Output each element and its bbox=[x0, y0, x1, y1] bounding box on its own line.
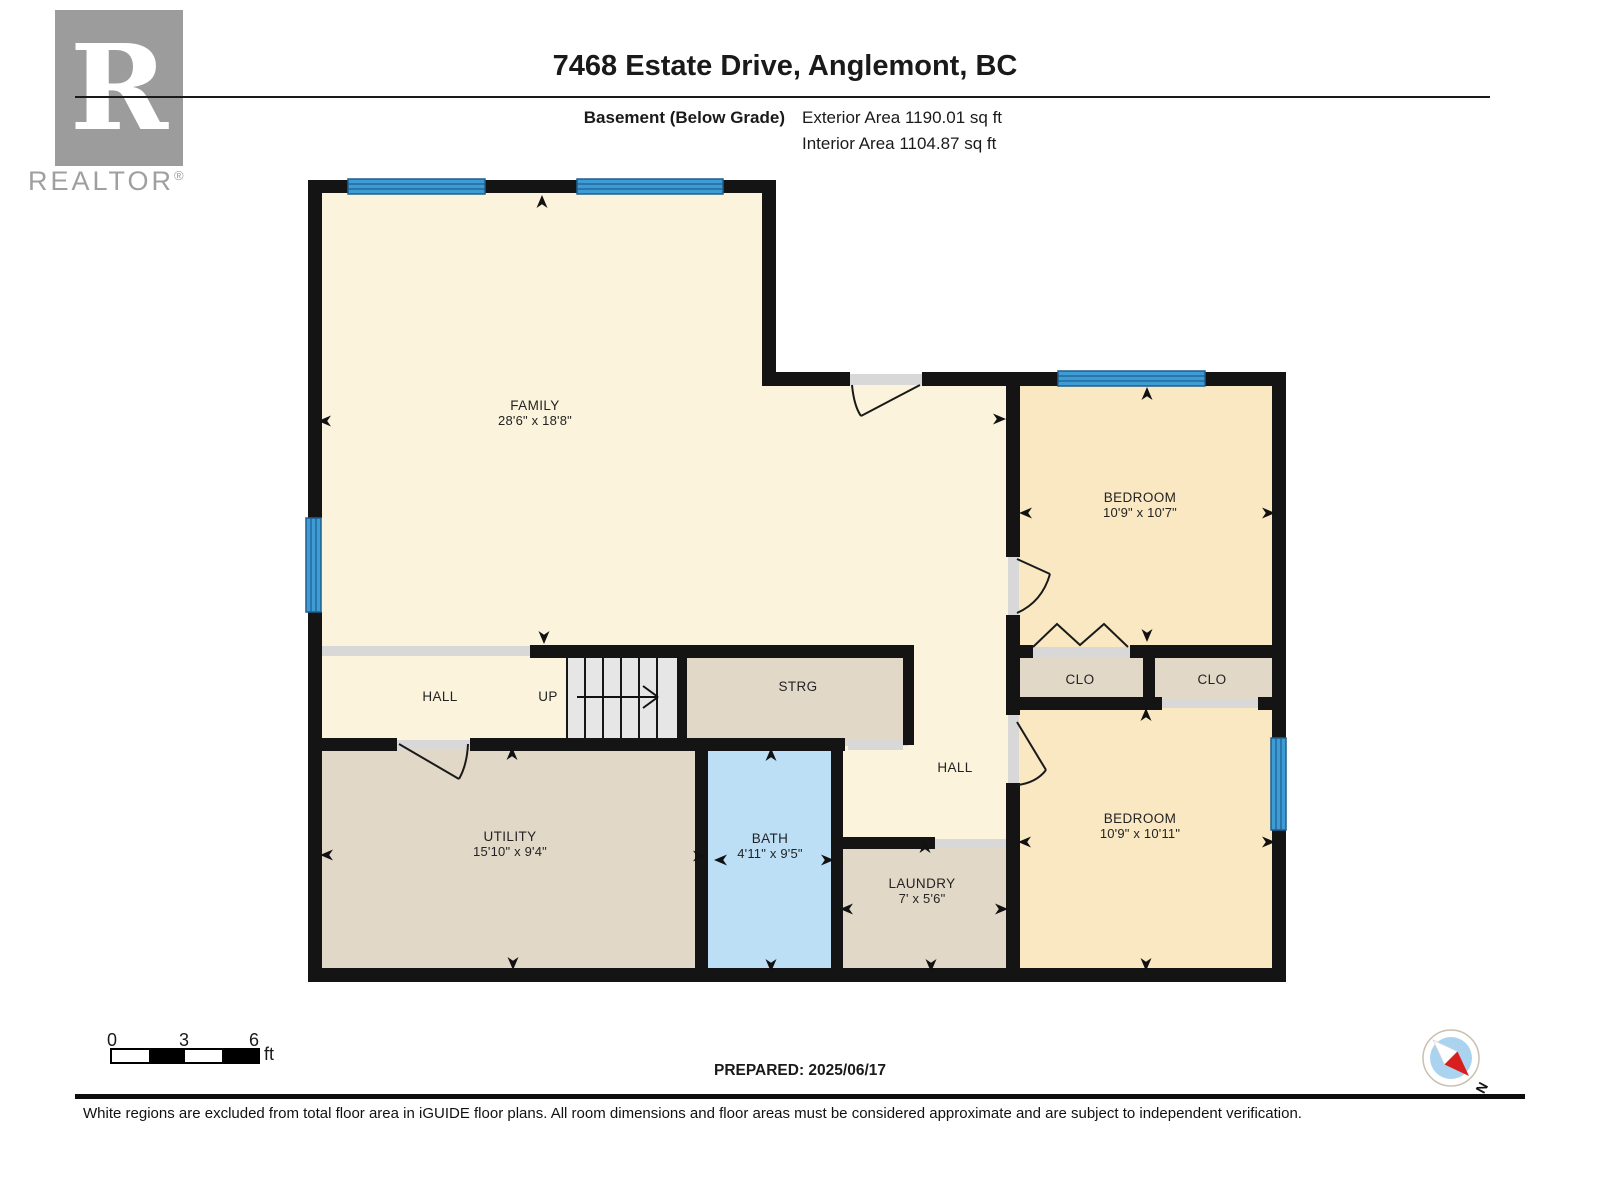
bedroom-top-label: BEDROOM bbox=[1104, 490, 1177, 505]
hall-lower-label: HALL bbox=[937, 760, 972, 775]
footer-divider bbox=[75, 1094, 1525, 1099]
hall-upper-label: HALL bbox=[422, 689, 457, 704]
family-dims: 28'6" x 18'8" bbox=[498, 413, 572, 428]
room-storage bbox=[683, 651, 908, 746]
prepared-date: PREPARED: 2025/06/17 bbox=[640, 1062, 960, 1080]
utility-label: UTILITY bbox=[483, 829, 536, 844]
room-utility bbox=[318, 745, 700, 973]
closet-right-label: CLO bbox=[1198, 672, 1227, 687]
window-icon bbox=[306, 518, 321, 612]
window-icon bbox=[1058, 371, 1205, 386]
bedroom-bottom-dims: 10'9" x 10'11" bbox=[1100, 826, 1181, 841]
stairs-up-label: UP bbox=[538, 689, 558, 704]
scale-bar bbox=[110, 1048, 260, 1064]
window-icon bbox=[1271, 738, 1286, 830]
storage-label: STRG bbox=[778, 679, 817, 694]
utility-dims: 15'10" x 9'4" bbox=[473, 844, 547, 859]
floor-plan-page: R REALTOR® 7468 Estate Drive, Anglemont,… bbox=[0, 0, 1600, 1200]
scale-unit-label: ft bbox=[264, 1044, 274, 1065]
laundry-dims: 7' x 5'6" bbox=[899, 891, 946, 906]
room-hall-lower bbox=[838, 745, 1014, 845]
window-icon bbox=[348, 179, 485, 194]
room-hall-corridor bbox=[905, 648, 1015, 752]
compass-icon: N bbox=[1414, 1021, 1498, 1101]
bedroom-bottom-label: BEDROOM bbox=[1104, 811, 1177, 826]
bath-dims: 4'11" x 9'5" bbox=[737, 846, 803, 861]
room-laundry bbox=[840, 842, 1012, 972]
laundry-label: LAUNDRY bbox=[888, 876, 955, 891]
room-family-extension bbox=[765, 379, 1013, 651]
bath-label: BATH bbox=[752, 831, 789, 846]
closet-left-label: CLO bbox=[1066, 672, 1095, 687]
window-icon bbox=[577, 179, 723, 194]
bedroom-top-dims: 10'9" x 10'7" bbox=[1103, 505, 1177, 520]
disclaimer-text: White regions are excluded from total fl… bbox=[83, 1105, 1523, 1122]
family-label: FAMILY bbox=[510, 398, 559, 413]
floor-plan-drawing: FAMILY 28'6" x 18'8" BEDROOM 10'9" x 10'… bbox=[0, 0, 1600, 1200]
